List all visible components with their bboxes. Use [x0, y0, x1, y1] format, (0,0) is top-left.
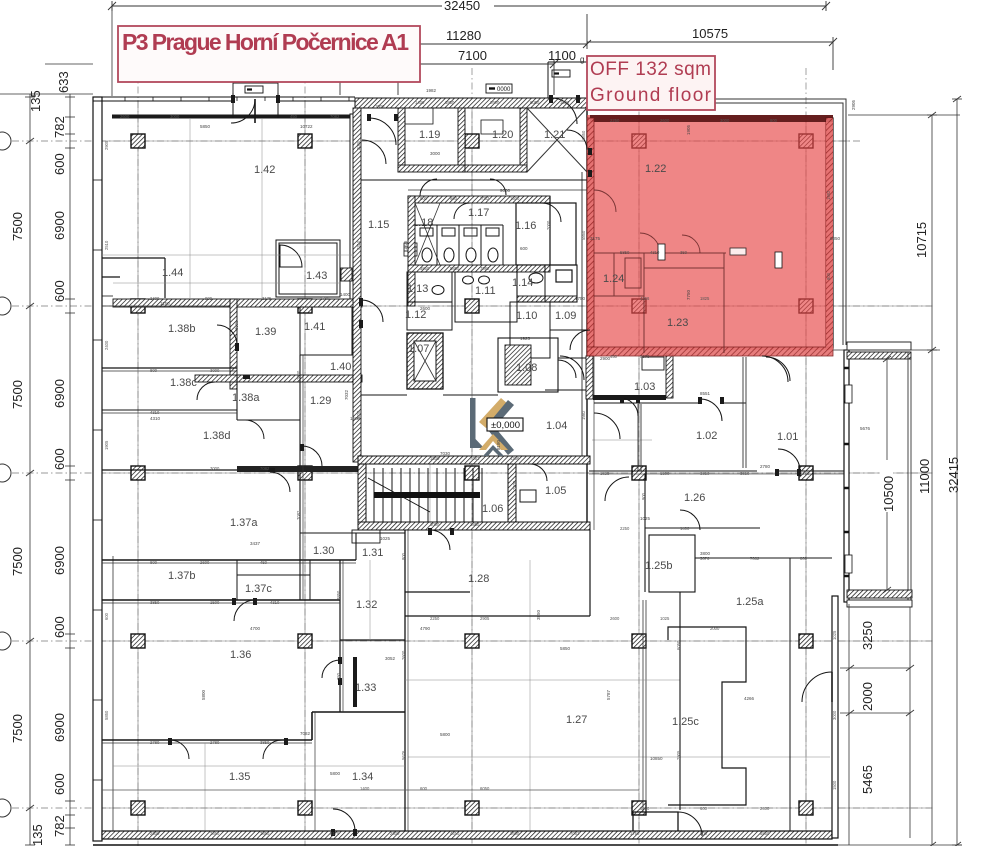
svg-text:3000: 3000: [234, 320, 239, 330]
svg-text:3175: 3175: [262, 296, 272, 301]
svg-text:2000: 2000: [356, 140, 361, 150]
svg-text:3437: 3437: [250, 541, 261, 546]
svg-text:1.25b: 1.25b: [645, 560, 673, 572]
svg-text:6900: 6900: [52, 379, 67, 408]
svg-text:1400: 1400: [680, 526, 690, 531]
svg-text:7500: 7500: [10, 714, 25, 743]
svg-text:1.33: 1.33: [355, 682, 376, 694]
svg-text:2905: 2905: [480, 616, 490, 621]
svg-text:7082: 7082: [260, 466, 270, 471]
svg-text:1.13: 1.13: [407, 283, 428, 295]
svg-text:1100: 1100: [548, 48, 576, 63]
svg-text:7100: 7100: [458, 48, 487, 63]
svg-text:1.03: 1.03: [634, 381, 655, 393]
svg-text:3850: 3850: [700, 471, 710, 476]
svg-text:3850: 3850: [150, 600, 160, 605]
svg-text:2600: 2600: [200, 560, 210, 565]
svg-text:7082: 7082: [480, 266, 490, 271]
svg-text:1825: 1825: [700, 296, 710, 301]
svg-text:2600: 2600: [610, 616, 620, 621]
svg-text:600: 600: [420, 786, 428, 791]
svg-text:4310: 4310: [150, 416, 161, 421]
svg-text:32450: 32450: [444, 0, 480, 13]
svg-text:1025: 1025: [640, 516, 651, 521]
svg-text:782: 782: [52, 116, 67, 138]
svg-text:1500: 1500: [510, 196, 520, 201]
svg-text:3052: 3052: [385, 656, 396, 661]
svg-text:1.36: 1.36: [230, 649, 251, 661]
svg-text:6900: 6900: [52, 546, 67, 575]
svg-text:3850: 3850: [740, 471, 750, 476]
svg-text:3850: 3850: [420, 266, 430, 271]
svg-text:135: 135: [28, 90, 43, 112]
svg-text:1982: 1982: [826, 190, 831, 200]
svg-text:4700: 4700: [250, 626, 261, 631]
svg-text:5850: 5850: [581, 230, 586, 240]
svg-text:2600: 2600: [390, 831, 400, 836]
svg-text:10500: 10500: [881, 476, 896, 512]
svg-text:1.07: 1.07: [408, 343, 429, 355]
svg-text:2780: 2780: [760, 464, 771, 469]
svg-text:7082: 7082: [300, 731, 311, 736]
svg-text:5676: 5676: [640, 354, 650, 359]
svg-text:4310: 4310: [450, 831, 460, 836]
svg-text:1905: 1905: [104, 440, 109, 450]
svg-text:7082: 7082: [330, 114, 340, 119]
svg-text:10715: 10715: [914, 222, 929, 258]
svg-text:7030: 7030: [440, 451, 451, 456]
svg-text:3850: 3850: [336, 590, 341, 600]
svg-text:1400: 1400: [360, 786, 370, 791]
svg-text:4266: 4266: [744, 696, 755, 701]
svg-text:450: 450: [260, 560, 268, 565]
svg-text:5676: 5676: [401, 750, 406, 760]
svg-text:1.19: 1.19: [419, 129, 440, 141]
svg-text:OFF 132 sqm: OFF 132 sqm: [590, 59, 711, 80]
svg-text:600: 600: [52, 773, 67, 795]
svg-text:10722: 10722: [300, 124, 313, 129]
svg-text:450: 450: [290, 114, 298, 119]
svg-text:5465: 5465: [860, 765, 875, 794]
svg-text:3850: 3850: [210, 831, 220, 836]
svg-text:2780: 2780: [150, 740, 160, 745]
svg-text:1750: 1750: [630, 831, 640, 836]
svg-text:1.25a: 1.25a: [736, 596, 764, 608]
svg-text:8551: 8551: [700, 391, 711, 396]
svg-text:2000: 2000: [860, 682, 875, 711]
svg-text:2400: 2400: [104, 340, 109, 350]
svg-text:1.41: 1.41: [304, 321, 325, 333]
svg-text:5800: 5800: [330, 771, 341, 776]
svg-text:1.17: 1.17: [468, 207, 489, 219]
svg-text:3000: 3000: [832, 710, 837, 720]
svg-text:1.37b: 1.37b: [168, 570, 196, 582]
svg-text:633: 633: [56, 71, 71, 93]
svg-text:1.38d: 1.38d: [203, 430, 231, 442]
svg-text:2400: 2400: [512, 480, 517, 490]
svg-text:800: 800: [770, 118, 778, 123]
svg-text:1.42: 1.42: [254, 164, 275, 176]
svg-text:P3 Prague Horní Počernice A1: P3 Prague Horní Počernice A1: [122, 29, 409, 55]
svg-text:Ground floor: Ground floor: [590, 85, 712, 106]
svg-text:2600: 2600: [420, 306, 431, 311]
svg-text:2780: 2780: [320, 296, 330, 301]
svg-text:1.40: 1.40: [330, 361, 351, 373]
svg-text:6050: 6050: [676, 640, 681, 650]
svg-text:g: g: [580, 55, 584, 64]
svg-text:5787: 5787: [606, 689, 611, 700]
svg-text:2400: 2400: [150, 296, 160, 301]
svg-text:4266: 4266: [640, 296, 650, 301]
svg-text:7082: 7082: [570, 831, 580, 836]
svg-text:7082: 7082: [296, 510, 301, 520]
svg-text:1.05: 1.05: [545, 485, 566, 497]
svg-text:2905: 2905: [104, 140, 109, 150]
svg-text:4310: 4310: [356, 240, 361, 250]
svg-text:5850: 5850: [200, 124, 211, 129]
svg-text:1.04: 1.04: [546, 420, 567, 432]
svg-text:1150: 1150: [160, 301, 170, 306]
svg-text:3850: 3850: [260, 740, 270, 745]
svg-text:9000: 9000: [500, 188, 511, 193]
svg-text:600: 600: [52, 153, 67, 175]
svg-text:2600: 2600: [150, 831, 160, 836]
svg-text:1.21: 1.21: [544, 129, 565, 141]
svg-text:5850: 5850: [560, 646, 571, 651]
svg-text:900: 900: [450, 196, 458, 201]
svg-text:4266: 4266: [510, 456, 520, 461]
svg-text:1.38b: 1.38b: [168, 323, 196, 335]
svg-text:1.28: 1.28: [468, 573, 489, 585]
svg-text:1.01: 1.01: [777, 431, 798, 443]
svg-text:4310: 4310: [650, 250, 660, 255]
svg-text:1982: 1982: [560, 100, 570, 105]
svg-text:5800: 5800: [201, 689, 206, 700]
svg-text:900: 900: [205, 296, 213, 301]
svg-text:600: 600: [104, 612, 109, 620]
svg-text:3850: 3850: [536, 609, 541, 620]
svg-text:2000: 2000: [296, 370, 301, 380]
svg-text:800: 800: [150, 560, 158, 565]
svg-text:1.10: 1.10: [516, 310, 537, 322]
svg-text:1.08: 1.08: [516, 362, 537, 374]
svg-text:6900: 6900: [52, 713, 67, 742]
svg-text:1.32: 1.32: [356, 599, 377, 611]
svg-text:600: 600: [52, 616, 67, 638]
svg-text:2780: 2780: [210, 740, 220, 745]
svg-text:3175: 3175: [330, 831, 340, 836]
svg-text:0000: 0000: [497, 87, 511, 93]
svg-text:1.39: 1.39: [255, 326, 276, 338]
svg-text:3800: 3800: [700, 551, 711, 556]
svg-text:800: 800: [420, 196, 428, 201]
svg-text:6050: 6050: [480, 786, 490, 791]
svg-text:900: 900: [641, 492, 646, 500]
svg-text:1.06: 1.06: [482, 503, 503, 515]
svg-text:800: 800: [800, 556, 808, 561]
svg-text:1.22: 1.22: [645, 163, 666, 175]
svg-text:800: 800: [150, 368, 158, 373]
svg-text:1500: 1500: [210, 600, 220, 605]
svg-text:5850: 5850: [760, 831, 770, 836]
svg-text:1.26: 1.26: [684, 492, 705, 504]
svg-text:350: 350: [680, 250, 688, 255]
svg-text:1.09: 1.09: [555, 310, 576, 322]
svg-text:6050: 6050: [830, 236, 841, 241]
svg-text:3000: 3000: [210, 368, 220, 373]
svg-text:1500: 1500: [832, 780, 837, 790]
svg-text:1.27: 1.27: [566, 714, 587, 726]
svg-text:600: 600: [52, 448, 67, 470]
svg-text:6900: 6900: [52, 211, 67, 240]
svg-text:7500: 7500: [10, 212, 25, 241]
svg-text:8180: 8180: [496, 439, 501, 450]
svg-text:1982: 1982: [426, 88, 437, 93]
svg-text:1.44: 1.44: [162, 267, 183, 279]
svg-text:5850: 5850: [450, 266, 460, 271]
svg-text:1750: 1750: [575, 296, 586, 301]
svg-text:11000: 11000: [917, 459, 932, 494]
svg-text:3850: 3850: [581, 130, 586, 140]
svg-text:1.14: 1.14: [512, 277, 533, 289]
svg-text:2510: 2510: [104, 240, 109, 250]
svg-text:1.18: 1.18: [412, 217, 433, 229]
svg-text:1.16: 1.16: [515, 220, 536, 232]
svg-text:1982: 1982: [581, 410, 586, 420]
svg-text:1.23: 1.23: [667, 317, 688, 329]
svg-text:32415: 32415: [946, 457, 961, 493]
svg-text:1.31: 1.31: [362, 547, 383, 559]
svg-text:782: 782: [52, 815, 67, 837]
svg-text:7750: 7750: [686, 289, 691, 300]
svg-text:2600: 2600: [401, 650, 406, 660]
svg-text:1500: 1500: [660, 471, 670, 476]
svg-text:900: 900: [700, 831, 708, 836]
svg-text:1025: 1025: [832, 630, 837, 640]
svg-text:1.11: 1.11: [475, 285, 496, 297]
svg-text:450: 450: [610, 354, 618, 359]
svg-text:10575: 10575: [692, 26, 728, 41]
svg-text:3850: 3850: [640, 806, 650, 811]
svg-text:7082: 7082: [480, 196, 490, 201]
svg-text:2600: 2600: [660, 118, 670, 123]
svg-text:3850: 3850: [470, 522, 480, 527]
svg-text:3850: 3850: [260, 831, 270, 836]
svg-text:1.34: 1.34: [352, 771, 373, 783]
svg-text:1.38a: 1.38a: [232, 392, 260, 404]
svg-text:2250: 2250: [620, 526, 630, 531]
svg-text:2900: 2900: [600, 356, 611, 361]
svg-text:3000: 3000: [430, 151, 441, 156]
svg-text:1.24: 1.24: [603, 273, 624, 285]
svg-text:2600: 2600: [120, 114, 130, 119]
svg-text:1.35: 1.35: [229, 771, 250, 783]
svg-text:1925: 1925: [520, 336, 531, 341]
svg-text:1.37c: 1.37c: [245, 583, 272, 595]
svg-text:2780: 2780: [800, 471, 810, 476]
svg-text:1.29: 1.29: [310, 395, 331, 407]
svg-text:7500: 7500: [10, 380, 25, 409]
svg-text:5800: 5800: [440, 732, 451, 737]
svg-text:1.43: 1.43: [306, 270, 327, 282]
svg-text:5850: 5850: [620, 250, 630, 255]
svg-text:2000: 2000: [710, 626, 720, 631]
svg-text:1025: 1025: [660, 616, 670, 621]
svg-text:1025: 1025: [380, 536, 391, 541]
svg-text:600: 600: [700, 806, 708, 811]
svg-text:2000: 2000: [546, 220, 551, 230]
svg-text:800: 800: [826, 272, 831, 280]
svg-text:7082: 7082: [470, 456, 480, 461]
svg-text:2905: 2905: [676, 750, 681, 760]
svg-text:1905: 1905: [686, 124, 691, 135]
svg-text:4310: 4310: [270, 600, 280, 605]
svg-text:2905: 2905: [851, 99, 856, 110]
svg-text:350: 350: [336, 672, 341, 680]
svg-text:1500: 1500: [375, 104, 385, 109]
svg-text:1500: 1500: [430, 456, 440, 461]
svg-text:1.20: 1.20: [492, 129, 513, 141]
svg-text:7500: 7500: [10, 547, 25, 576]
svg-text:6050: 6050: [530, 100, 540, 105]
svg-text:3000: 3000: [170, 114, 180, 119]
svg-text:11280: 11280: [446, 28, 481, 43]
svg-text:3000: 3000: [210, 466, 220, 471]
svg-text:2400: 2400: [760, 806, 770, 811]
svg-text:2250: 2250: [610, 118, 620, 123]
svg-text:3175: 3175: [590, 236, 601, 241]
svg-text:135: 135: [30, 824, 45, 846]
svg-text:3850: 3850: [445, 100, 455, 105]
svg-text:1825: 1825: [403, 240, 408, 250]
svg-text:1.25c: 1.25c: [672, 716, 699, 728]
svg-text:3000: 3000: [430, 522, 440, 527]
svg-text:1500: 1500: [350, 416, 361, 421]
svg-text:±0,000: ±0,000: [491, 420, 520, 431]
svg-text:1825: 1825: [600, 471, 610, 476]
svg-text:7082: 7082: [750, 556, 760, 561]
svg-text:2600: 2600: [490, 100, 500, 105]
svg-text:1.15: 1.15: [368, 219, 389, 231]
svg-text:1.38c: 1.38c: [170, 377, 197, 389]
svg-text:3250: 3250: [860, 621, 875, 650]
svg-text:600: 600: [520, 246, 528, 251]
svg-text:1.37a: 1.37a: [230, 517, 258, 529]
svg-text:4790: 4790: [420, 626, 431, 631]
svg-text:5676: 5676: [700, 556, 710, 561]
svg-text:2250: 2250: [430, 616, 440, 621]
svg-text:800: 800: [401, 552, 406, 560]
svg-text:5676: 5676: [860, 426, 871, 431]
svg-text:3000: 3000: [720, 118, 730, 123]
svg-text:10850: 10850: [650, 756, 663, 761]
svg-text:1.30: 1.30: [313, 545, 334, 557]
svg-text:5850: 5850: [104, 710, 109, 720]
svg-text:1.02: 1.02: [696, 430, 717, 442]
svg-text:1400: 1400: [415, 100, 425, 105]
svg-text:1400: 1400: [340, 292, 351, 297]
svg-text:7032: 7032: [344, 389, 349, 400]
svg-text:4310: 4310: [150, 410, 160, 415]
svg-text:600: 600: [52, 280, 67, 302]
svg-text:2600: 2600: [510, 831, 520, 836]
